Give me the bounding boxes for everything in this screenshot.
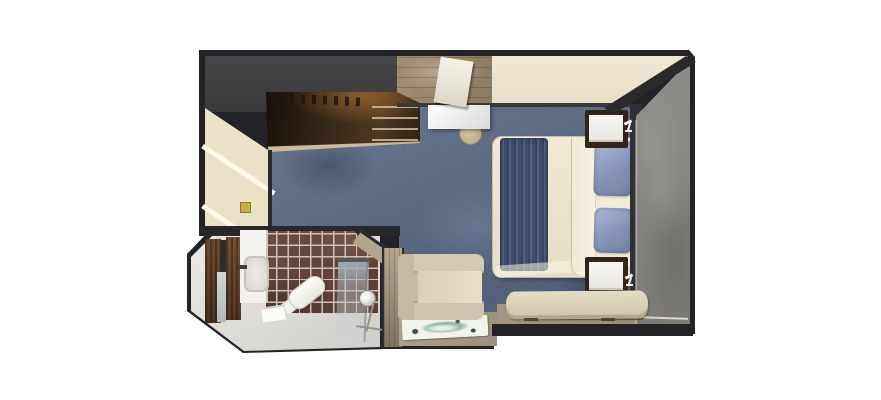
closet-shelves: [372, 106, 418, 148]
stateroom-floorplan: [0, 0, 881, 400]
sink: [244, 256, 269, 292]
light-switch: [240, 202, 251, 213]
sheet-band: [572, 138, 596, 276]
nightstand-top-surface: [589, 262, 623, 290]
bench: [506, 290, 648, 319]
bottom-wall: [492, 324, 693, 336]
lamp-base: [626, 284, 633, 286]
bench-foot: [601, 318, 615, 321]
faucet: [238, 265, 247, 269]
lamp-base: [625, 130, 632, 132]
nightstand-top-surface: [589, 115, 623, 142]
wall-edge-line: [268, 150, 272, 230]
towel: [260, 304, 287, 323]
mirror: [217, 272, 226, 322]
desk: [428, 105, 490, 129]
armchair-seat: [418, 271, 482, 303]
entry-door-leaf: [226, 237, 241, 320]
bench-foot: [524, 318, 538, 321]
bed-runner: [500, 138, 548, 271]
armchair-arm: [414, 301, 484, 320]
pillow-blue: [593, 208, 632, 254]
armchair: [398, 254, 484, 320]
pillow-blue: [593, 140, 632, 197]
